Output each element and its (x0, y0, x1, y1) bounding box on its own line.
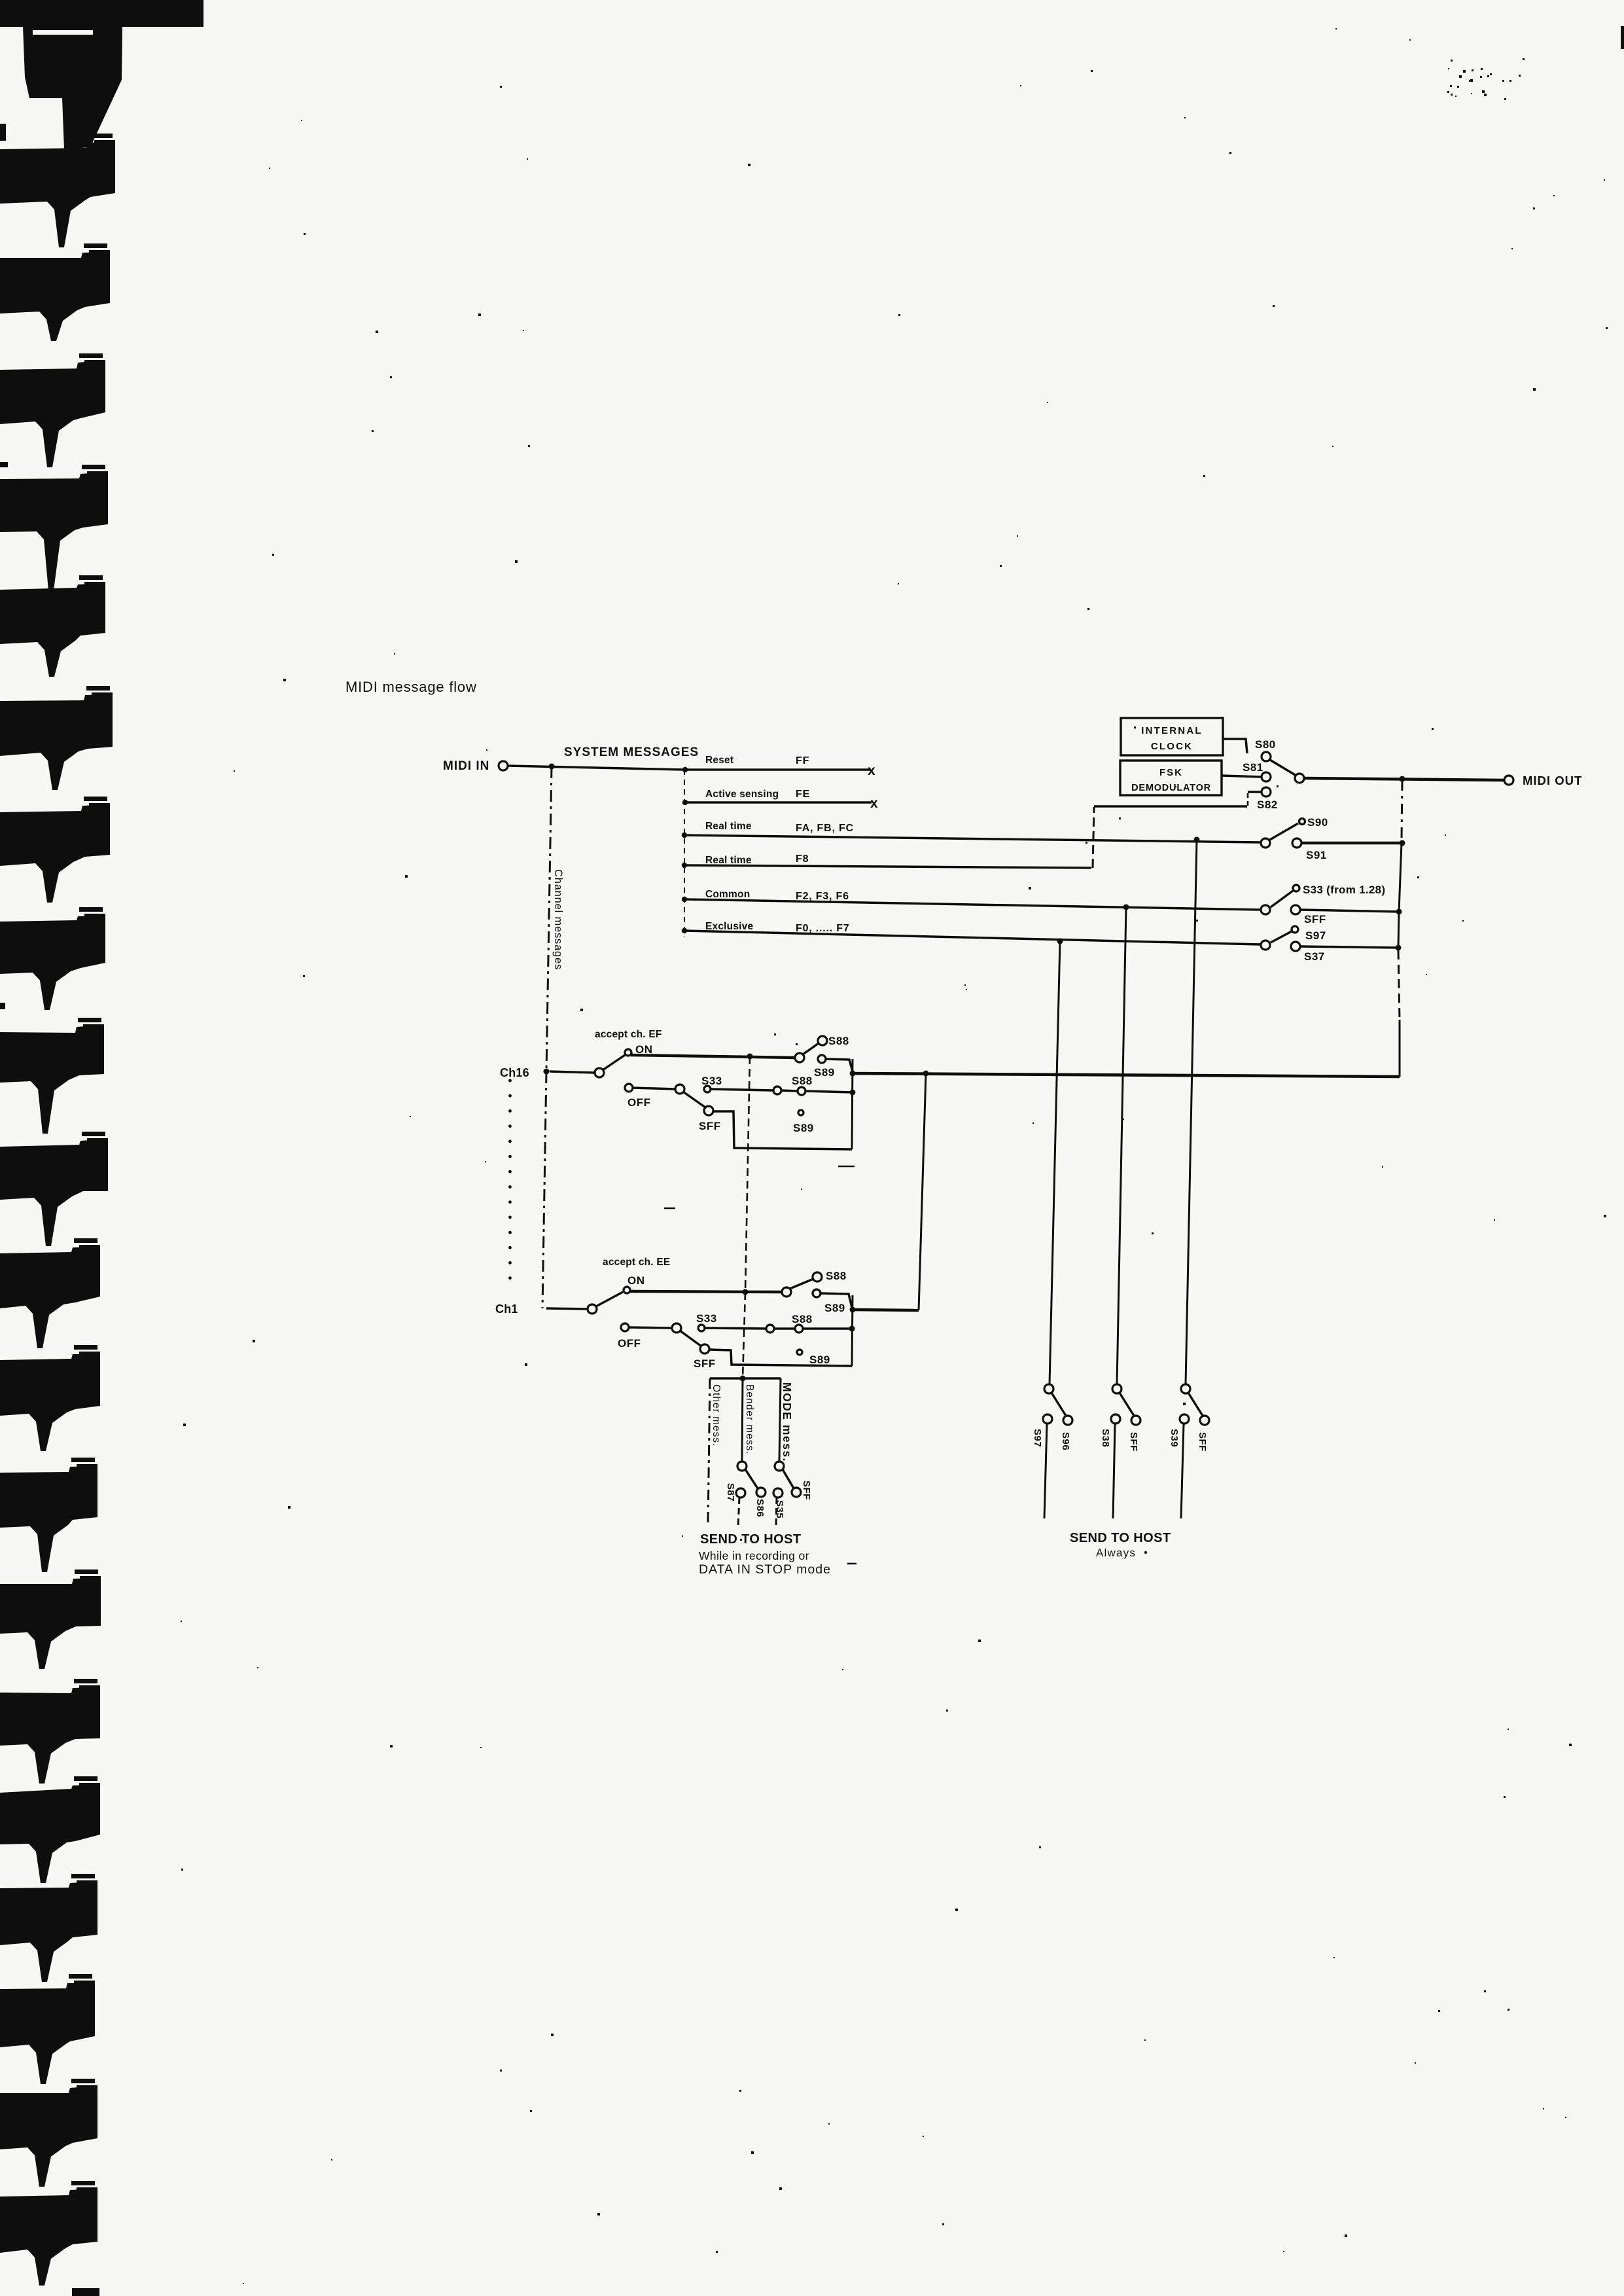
svg-text:OFF: OFF (627, 1096, 651, 1109)
svg-text:S33: S33 (696, 1312, 717, 1325)
svg-text:Bender mess.: Bender mess. (744, 1384, 755, 1455)
svg-text:S80: S80 (1255, 738, 1276, 751)
svg-text:CLOCK: CLOCK (1151, 741, 1193, 752)
svg-text:SFF: SFF (1197, 1432, 1208, 1452)
svg-text:DEMODULATOR: DEMODULATOR (1131, 783, 1211, 793)
svg-text:S33 (from 1.28): S33 (from 1.28) (1303, 884, 1385, 896)
svg-text:FSK: FSK (1159, 767, 1183, 778)
svg-text:accept ch. EE: accept ch. EE (603, 1257, 670, 1268)
svg-text:ON: ON (627, 1274, 645, 1287)
svg-text:FF: FF (796, 755, 809, 766)
svg-text:S87: S87 (725, 1483, 736, 1501)
svg-text:Real time: Real time (705, 855, 752, 866)
svg-text:F8: F8 (796, 853, 809, 865)
svg-text:S89: S89 (824, 1302, 845, 1314)
svg-text:S33: S33 (701, 1075, 722, 1087)
svg-text:Common: Common (705, 889, 750, 900)
svg-text:Active sensing: Active sensing (705, 789, 779, 800)
svg-text:F2, F3, F6: F2, F3, F6 (796, 891, 849, 902)
svg-text:S97: S97 (1305, 929, 1326, 942)
svg-text:FA, FB, FC: FA, FB, FC (796, 823, 854, 834)
svg-text:S96: S96 (1060, 1432, 1071, 1450)
svg-text:S91: S91 (1306, 849, 1327, 861)
svg-text:S39: S39 (1169, 1429, 1180, 1447)
svg-text:FE: FE (796, 789, 810, 800)
svg-text:S97: S97 (1032, 1429, 1043, 1447)
svg-text:F0, ..... F7: F0, ..... F7 (796, 923, 850, 934)
svg-text:SFF: SFF (1128, 1432, 1139, 1452)
svg-text:SFF: SFF (699, 1120, 721, 1132)
svg-text:S38: S38 (1100, 1429, 1111, 1447)
svg-text:While in recording or: While in recording or (699, 1549, 809, 1562)
svg-text:Other mess.: Other mess. (711, 1384, 722, 1446)
svg-text:S88: S88 (826, 1270, 847, 1282)
svg-text:Ch16: Ch16 (500, 1066, 529, 1079)
svg-text:MIDI IN: MIDI IN (443, 759, 489, 773)
svg-text:MIDI OUT: MIDI OUT (1523, 774, 1582, 787)
svg-text:MIDI message flow: MIDI message flow (345, 679, 477, 695)
svg-text:Always: Always (1096, 1547, 1136, 1559)
svg-text:S89: S89 (809, 1354, 830, 1366)
svg-text:INTERNAL: INTERNAL (1141, 725, 1202, 736)
svg-text:Channel messages: Channel messages (552, 869, 564, 970)
svg-text:Reset: Reset (705, 755, 733, 766)
svg-text:Ch1: Ch1 (495, 1302, 518, 1316)
svg-text:S88: S88 (792, 1313, 813, 1325)
svg-text:S89: S89 (814, 1066, 835, 1079)
svg-text:S37: S37 (1304, 950, 1325, 963)
svg-text:accept ch. EF: accept ch. EF (595, 1029, 662, 1040)
svg-text:SYSTEM MESSAGES: SYSTEM MESSAGES (564, 745, 699, 759)
svg-text:SEND TO HOST: SEND TO HOST (700, 1532, 801, 1547)
svg-text:SFF: SFF (801, 1480, 812, 1500)
svg-text:SEND TO HOST: SEND TO HOST (1070, 1531, 1171, 1545)
svg-text:SFF: SFF (694, 1357, 716, 1370)
svg-text:S81: S81 (1243, 761, 1263, 774)
svg-text:S90: S90 (1307, 816, 1328, 829)
svg-text:x: x (868, 763, 875, 778)
svg-text:OFF: OFF (618, 1337, 641, 1350)
svg-text:S88: S88 (792, 1075, 813, 1087)
svg-text:S88: S88 (828, 1035, 849, 1047)
svg-text:MODE mess.: MODE mess. (781, 1382, 794, 1462)
svg-text:SFF: SFF (1304, 913, 1326, 925)
svg-text:S35: S35 (774, 1500, 785, 1518)
svg-text:Real time: Real time (705, 821, 752, 832)
svg-text:DATA IN STOP mode: DATA IN STOP mode (699, 1562, 831, 1577)
svg-text:x: x (870, 796, 878, 811)
svg-text:Exclusive: Exclusive (705, 921, 754, 932)
svg-text:S89: S89 (793, 1122, 814, 1134)
svg-text:S82: S82 (1257, 798, 1278, 811)
svg-text:S86: S86 (754, 1499, 766, 1517)
